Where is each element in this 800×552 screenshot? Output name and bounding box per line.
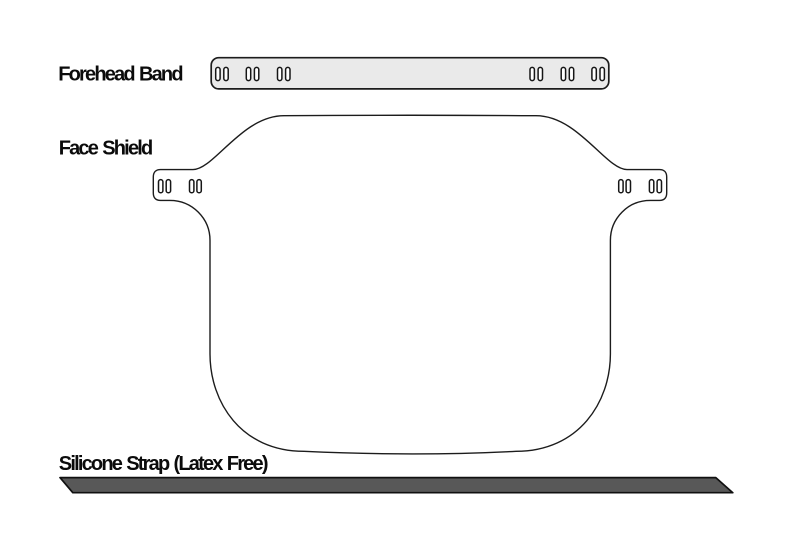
svg-text:Silicone Strap (Latex Free): Silicone Strap (Latex Free) (59, 453, 268, 475)
svg-text:Forehead Band: Forehead Band (58, 64, 182, 86)
svg-text:Face Shield: Face Shield (59, 137, 152, 159)
